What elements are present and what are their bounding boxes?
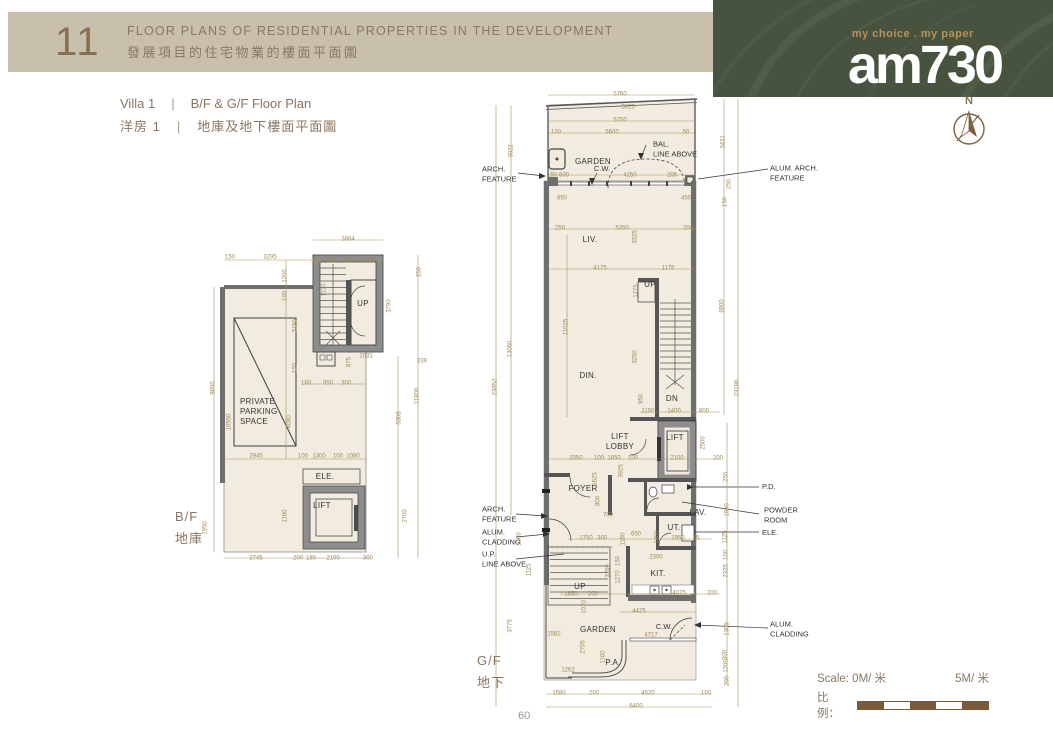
dimension-label: 8650	[210, 381, 218, 394]
dimension-label: 3925	[618, 464, 626, 477]
dimension-label: 875	[346, 357, 354, 367]
dimension-label: 1850	[607, 455, 620, 463]
dimension-label: 2745	[249, 555, 262, 563]
dimension-label: 250	[555, 225, 565, 233]
gf-floor-label: G/F 地下	[477, 650, 505, 694]
dimension-label: 650	[557, 195, 567, 203]
room-label: GARDEN	[580, 625, 616, 635]
dimension-label: 4080	[286, 415, 294, 428]
north-label: N	[942, 95, 996, 107]
dimension-label: 1580	[552, 690, 565, 698]
dimension-label: 200	[713, 455, 723, 463]
room-label: DN	[666, 394, 678, 404]
dimension-label: 150	[547, 172, 557, 180]
villa-name-en: Villa 1	[120, 96, 155, 111]
dimension-label: 1130	[321, 284, 329, 297]
dimension-label: 5308	[396, 411, 404, 424]
dimension-label: 1160	[282, 510, 290, 523]
dimension-label: 3190	[292, 319, 300, 332]
dimension-label: 2500	[700, 436, 708, 449]
page-number: 60	[518, 710, 530, 722]
dimension-label: 450	[681, 195, 691, 203]
room-label: LIFT	[313, 501, 331, 511]
annotation-label: ALUM. CLADDING	[482, 527, 521, 547]
dimension-label: 5750	[613, 117, 626, 125]
dimension-label: 3790	[386, 299, 394, 312]
dimension-label: 3250	[632, 350, 640, 363]
scale-bar-graphic	[857, 701, 989, 710]
dimension-label: 2945	[249, 453, 262, 461]
dimension-label: 1125	[722, 531, 730, 544]
dimension-label: 1200	[723, 659, 731, 672]
dimension-label: 6400	[629, 703, 642, 711]
dimension-label: 100	[594, 455, 604, 463]
dimension-label: 3325	[632, 230, 640, 243]
dimension-label: 300	[341, 380, 351, 388]
room-label: DIN.	[579, 371, 596, 381]
dimension-label: 300	[343, 258, 353, 266]
dimension-label: 4425	[632, 608, 645, 616]
room-label: UP	[357, 299, 369, 309]
dimension-label: 5600	[605, 129, 618, 137]
dimension-label: 150	[292, 363, 300, 373]
page-title-zh: 發展項目的住宅物業的樓面平面圖	[127, 42, 614, 61]
dimension-label: 1582	[547, 631, 560, 639]
dimension-label: 250	[726, 179, 734, 189]
bf-floor-plan: 3884150329518095030010661130250379012001…	[170, 226, 450, 576]
annotation-label: P.D.	[762, 482, 776, 492]
separator: |	[171, 96, 174, 111]
dimension-label: 1070	[581, 600, 589, 613]
annotation-label: BAL. LINE ABOVE	[653, 139, 697, 159]
dimension-label: 1150	[642, 408, 655, 416]
annotation-label: C.W.	[656, 622, 672, 632]
dimension-label: 1160	[600, 651, 608, 664]
dimension-label: 100	[701, 690, 711, 698]
logo-brand: am730	[848, 40, 1001, 91]
dimension-label: 300	[597, 535, 607, 543]
dimension-label: 3295	[263, 254, 276, 262]
dimension-label: 2300	[649, 554, 662, 562]
annotation-label: POWDER ROOM	[764, 505, 798, 525]
dimension-label: 700	[603, 512, 613, 520]
dimension-label: 2100	[326, 555, 339, 563]
annotation-label: ALUM. ARCH. FEATURE	[770, 163, 818, 183]
plan-subtitle: Villa 1 | B/F & G/F Floor Plan 洋房 1 | 地庫…	[120, 96, 337, 140]
annotation-label: ARCH. FEATURE	[482, 504, 516, 524]
dimension-label: 200	[588, 591, 598, 599]
dimension-label: 1950	[202, 521, 210, 534]
dimension-label: 4075	[672, 590, 685, 598]
dimension-label: 239	[417, 358, 427, 366]
annotation-label: ELE.	[762, 528, 778, 538]
scale-prefix-zh: 比例：	[817, 689, 851, 721]
annotation-label: U.P. LINE ABOVE	[482, 549, 526, 569]
page: 11 FLOOR PLANS OF RESIDENTIAL PROPERTIES…	[0, 0, 1053, 745]
page-title-en: FLOOR PLANS OF RESIDENTIAL PROPERTIES IN…	[127, 24, 614, 38]
dimension-label: 200	[724, 676, 732, 686]
dimension-label: 1200	[282, 269, 290, 282]
dimension-label: 1160	[620, 533, 628, 546]
dimension-label: 2050	[569, 455, 582, 463]
room-label: KIT.	[651, 569, 666, 579]
room-label: LIFT	[666, 433, 684, 443]
dimension-label: 1305	[724, 622, 732, 635]
gf-label-zh: 地下	[477, 672, 505, 694]
dimension-label: 250	[723, 472, 731, 482]
dimension-label: 11025	[563, 319, 571, 335]
dimension-label: 50	[683, 129, 690, 137]
dimension-label: 8800	[719, 299, 727, 312]
dimension-label: 2700	[402, 509, 410, 522]
annotation-label: ARCH. FEATURE	[482, 164, 516, 184]
dimension-label: 200	[707, 590, 717, 598]
dimension-label: 1850	[564, 591, 577, 599]
dimension-label: 1125	[526, 564, 534, 577]
dimension-label: 150	[615, 556, 623, 566]
dimension-label: 1625	[592, 472, 600, 485]
header-band: 11 FLOOR PLANS OF RESIDENTIAL PROPERTIES…	[8, 12, 713, 72]
separator-zh: |	[177, 119, 181, 134]
section-number: 11	[55, 22, 115, 62]
room-label: ELE.	[316, 472, 335, 482]
bf-label-en: B/F	[175, 506, 203, 528]
dimension-label: 100	[723, 550, 731, 560]
dimension-label: 1066	[361, 258, 374, 266]
dimension-label: 150	[722, 197, 730, 207]
dimension-label: 205	[667, 172, 677, 180]
dimension-label: 1900	[724, 503, 732, 516]
room-label: UP	[644, 280, 656, 290]
bf-label-zh: 地庫	[175, 528, 203, 550]
dimension-label: 3350	[605, 564, 613, 577]
dimension-label: 1400	[667, 408, 680, 416]
dimension-label: 200	[683, 225, 693, 233]
room-label: UT.	[668, 523, 681, 533]
compass-icon	[942, 107, 996, 151]
dimension-label: 5625	[621, 104, 634, 112]
dimension-label: 1275	[633, 284, 641, 297]
dimension-label: 600	[559, 172, 569, 180]
plan-name-en: B/F & G/F Floor Plan	[191, 96, 312, 111]
scale-end-label: 5M/ 米	[955, 670, 989, 686]
gf-label-en: G/F	[477, 650, 505, 672]
am730-logo: my choice . my paper am730	[848, 28, 1001, 91]
dimension-label: 180	[306, 555, 316, 563]
dimension-label: 180	[301, 380, 311, 388]
dimension-label: 100	[628, 455, 638, 463]
dimension-label: 1080	[346, 453, 359, 461]
dimension-label: 100	[298, 453, 308, 461]
dimension-label: 3431	[720, 135, 728, 148]
dimension-label: 1360	[516, 532, 524, 545]
dimension-label: 800	[699, 408, 709, 416]
dimension-label: 23186	[734, 380, 742, 397]
plan-name-zh: 地庫及地下樓面平面圖	[197, 116, 337, 135]
dimension-label: 1300	[312, 453, 325, 461]
dimension-label: 10550	[226, 414, 234, 431]
dimension-label: 100	[551, 129, 561, 137]
dimension-label: 1300	[654, 530, 662, 543]
dimension-label: 2705	[580, 640, 588, 653]
dimension-label: 1175	[662, 265, 675, 273]
dimension-label: 950	[323, 380, 333, 388]
dimension-label: 1270	[615, 570, 623, 583]
dimension-label: 100	[282, 291, 290, 301]
dimension-label: 1031	[359, 353, 372, 361]
room-label: PRIVATE PARKING SPACE	[240, 397, 278, 427]
dimension-label: 180	[311, 258, 321, 266]
dimension-label: 1750	[579, 535, 592, 543]
dimension-label: 200	[293, 555, 303, 563]
dimension-label: 75	[693, 535, 700, 543]
dimension-label: 200	[589, 690, 599, 698]
dimension-label: 950	[327, 258, 337, 266]
dimension-label: 2100	[670, 455, 683, 463]
dimension-label: 4250	[623, 172, 636, 180]
dimension-label: 1262	[561, 667, 574, 675]
dimension-label: 150	[225, 254, 235, 262]
dimension-label: 3775	[507, 619, 515, 632]
bf-floor-label: B/F 地庫	[175, 506, 203, 550]
scale-bar: Scale: 0M/ 米 5M/ 米 比例：	[817, 670, 989, 721]
room-label: LIV.	[583, 235, 598, 245]
dimension-label: 5350	[615, 225, 628, 233]
scale-start-label: Scale: 0M/ 米	[817, 670, 886, 686]
masthead-banner: my choice . my paper am730	[713, 0, 1053, 97]
annotation-label: C.W.	[594, 164, 610, 174]
dimension-label: 4717	[644, 632, 657, 640]
dimension-label: 300	[363, 555, 373, 563]
dimension-label: 23852	[492, 379, 500, 396]
room-label: LAV.	[689, 508, 706, 518]
dimension-label: 250	[416, 267, 424, 277]
room-label: LIFT LOBBY	[606, 432, 634, 452]
dimension-label: 5760	[613, 91, 626, 99]
dimension-label: 800	[595, 496, 603, 506]
dimension-label: 1950	[671, 535, 684, 543]
dimension-label: 950	[638, 394, 646, 404]
north-compass: N	[942, 95, 996, 153]
dimension-label: 4175	[593, 265, 606, 273]
gf-floor-plan: 576056255750100560050GARDENBAL. LINE ABO…	[480, 85, 820, 725]
dimension-label: 100	[333, 453, 343, 461]
villa-name-zh: 洋房 1	[120, 116, 161, 135]
header-titles: FLOOR PLANS OF RESIDENTIAL PROPERTIES IN…	[127, 24, 614, 61]
annotation-label: ALUM. CLADDING	[770, 619, 809, 639]
dimension-label: 3884	[341, 236, 354, 244]
dimension-label: 13050	[507, 341, 515, 358]
dimension-label: 4520	[641, 690, 654, 698]
dimension-label: 650	[631, 531, 641, 539]
dimension-label: 11800	[414, 388, 422, 404]
dimension-label: 2325	[723, 564, 731, 577]
dimension-label: 3022	[508, 144, 516, 157]
